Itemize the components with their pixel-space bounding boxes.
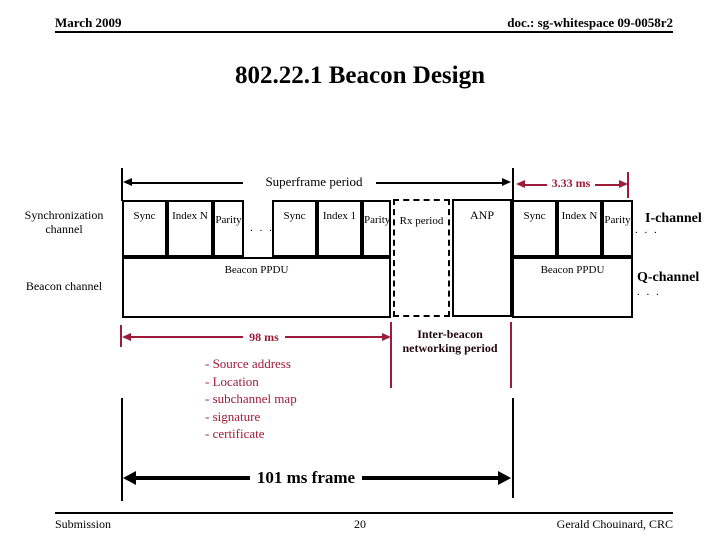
beacon-period-end-tick [627,172,629,198]
beacon-period-arrow-line-right [595,184,621,186]
page-title: 802.22.1 Beacon Design [0,62,720,90]
footer-rule [55,512,673,514]
beacon-period-label: 3.33 ms [545,176,597,191]
parity-box-2: Parity [362,200,391,257]
beacon-channel-label: Beacon channel [8,279,120,293]
payload-item-certificate: - certificate [205,425,297,443]
index-n-box-3: Index N [557,200,602,257]
frame-arrowhead-right-icon [498,471,511,485]
header-date: March 2009 [55,15,122,31]
superframe-period-label: Superframe period [255,174,373,190]
rx-period-box: Rx period [393,199,450,317]
superframe-end-line [512,168,514,201]
beacon-ppdu-box-left: Beacon PPDU [122,257,391,318]
payload-item-signature: - signature [205,408,297,426]
payload-item-source-address: - Source address [205,355,297,373]
inter-beacon-right-line [510,322,512,388]
sync-box-2: Sync [272,200,317,257]
payload-item-subchannel-map: - subchannel map [205,390,297,408]
frame-arrow-line-right [362,476,499,480]
anp-box: ANP [452,199,512,317]
superframe-arrow-line-right [376,182,504,184]
active-period-arrow-line-right [285,336,384,338]
i-channel-dots: . . . [635,224,659,236]
header-doc-id: doc.: sg-whitespace 09-0058r2 [507,15,673,31]
superframe-arrow-line-left [131,182,243,184]
inter-beacon-label: Inter-beacon networking period [399,328,501,355]
q-channel-label: Q-channel [637,270,699,286]
sync-channel-label: Synchronization channel [8,208,120,236]
active-period-arrow-line-left [130,336,243,338]
sync-box-1: Sync [122,200,167,257]
q-channel-dots: . . . [637,286,661,298]
footer-author: Gerald Chouinard, CRC [557,517,673,532]
header-rule [55,31,673,33]
parity-box-1: Parity [213,200,244,257]
index-n-box-1: Index N [167,200,213,257]
frame-label: 101 ms frame [250,468,362,488]
inter-beacon-left-line [390,322,392,388]
beacon-period-arrow-line-left [524,184,547,186]
frame-arrow-line-left [135,476,250,480]
superframe-arrowhead-right-icon [502,178,511,186]
sync-box-3: Sync [512,200,557,257]
beacon-ppdu-box-right: Beacon PPDU [512,257,633,318]
index-1-box: Index 1 [317,200,362,257]
parity-box-3: Parity [602,200,633,257]
frame-left-line [121,398,123,501]
beacon-payload-list: - Source address - Location - subchannel… [205,355,297,443]
slide: March 2009 doc.: sg-whitespace 09-0058r2… [0,0,720,540]
active-period-label: 98 ms [241,330,287,345]
payload-item-location: - Location [205,373,297,391]
frame-right-line [512,398,514,498]
